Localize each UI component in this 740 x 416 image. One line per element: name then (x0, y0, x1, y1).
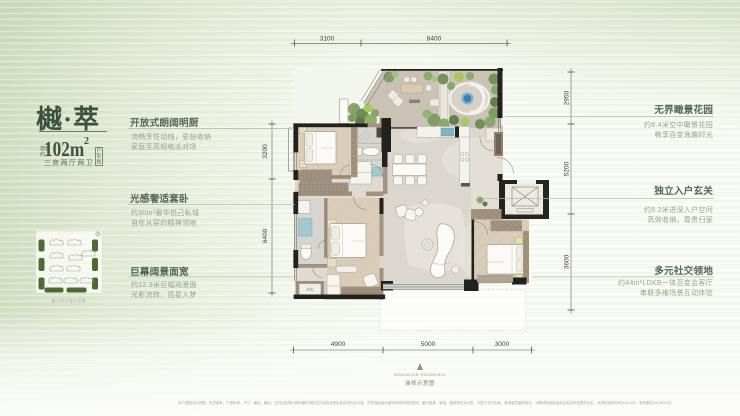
svg-text:8400: 8400 (427, 36, 442, 43)
svg-text:5000: 5000 (421, 341, 436, 348)
svg-text:5200: 5200 (564, 161, 571, 176)
svg-text:A/C: A/C (306, 287, 313, 292)
svg-text:3000: 3000 (495, 341, 510, 348)
svg-text:3200: 3200 (262, 144, 269, 159)
svg-text:3600: 3600 (564, 254, 571, 269)
svg-text:6400: 6400 (262, 228, 269, 243)
svg-text:樾江境平面示意图: 樾江境平面示意图 (52, 298, 86, 303)
svg-text:2950: 2950 (564, 90, 571, 105)
svg-text:3100: 3100 (320, 36, 335, 43)
svg-text:4900: 4900 (331, 341, 346, 348)
